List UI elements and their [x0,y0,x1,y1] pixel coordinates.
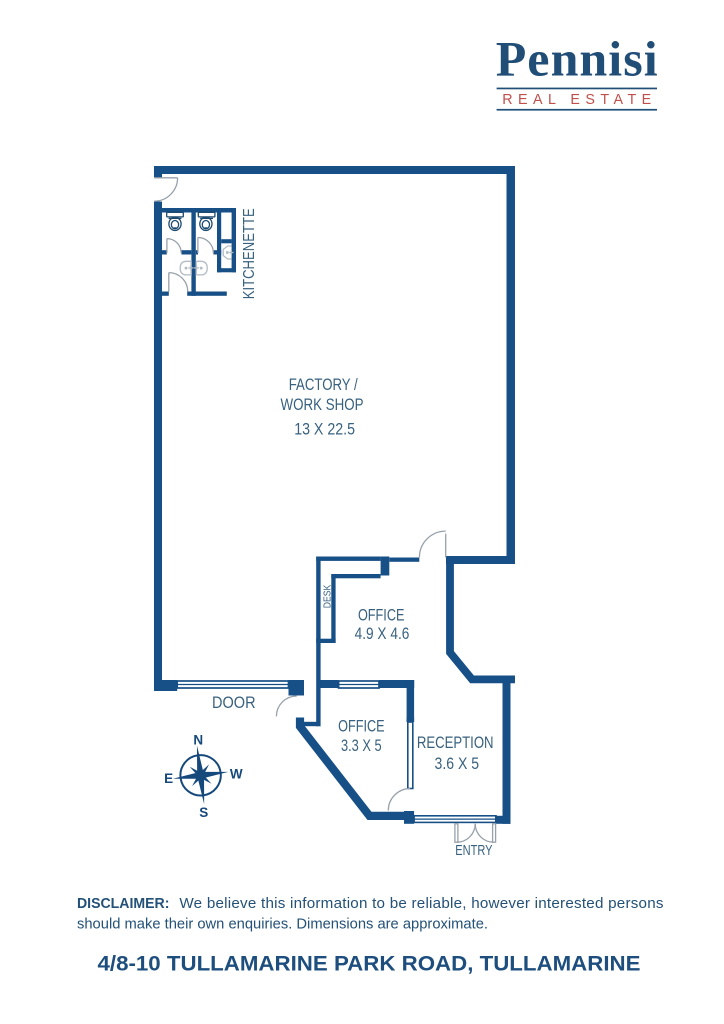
svg-text:REAL ESTATE: REAL ESTATE [502,92,651,108]
svg-text:3.6 X 5: 3.6 X 5 [435,754,480,773]
svg-text:DISCLAIMER:: DISCLAIMER: [77,895,169,912]
svg-text:4.9 X 4.6: 4.9 X 4.6 [355,624,410,643]
svg-text:13 X 22.5: 13 X 22.5 [294,420,355,439]
svg-text:4/8-10 TULLAMARINE PARK ROAD,: 4/8-10 TULLAMARINE PARK ROAD, TULLAMARIN… [98,953,641,976]
svg-text:N: N [193,733,203,748]
svg-text:ENTRY: ENTRY [455,843,493,859]
svg-text:WORK SHOP: WORK SHOP [281,395,364,414]
svg-text:FACTORY /: FACTORY / [289,375,358,394]
svg-text:RECEPTION: RECEPTION [417,733,494,752]
svg-text:We believe this information to: We believe this information to be reliab… [179,895,664,912]
svg-text:should make their own enquirie: should make their own enquiries. Dimensi… [77,916,488,933]
svg-text:W: W [230,766,243,781]
svg-text:Pennisi: Pennisi [496,31,658,87]
svg-text:DESK: DESK [321,585,333,609]
svg-text:DOOR: DOOR [212,693,256,712]
svg-text:OFFICE: OFFICE [358,606,405,625]
svg-text:KITCHENETTE: KITCHENETTE [241,208,258,299]
svg-text:E: E [164,771,173,786]
svg-text:S: S [199,805,208,820]
svg-text:3.3 X 5: 3.3 X 5 [341,736,382,755]
svg-text:OFFICE: OFFICE [338,717,385,736]
